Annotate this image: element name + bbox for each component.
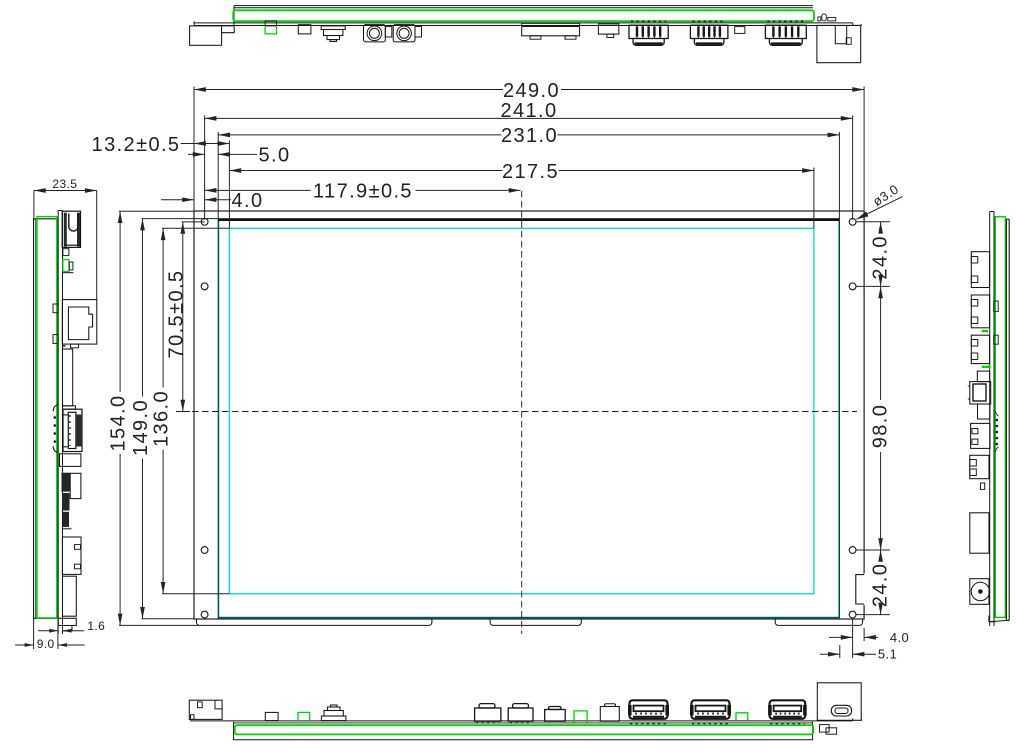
- svg-text:149.0: 149.0: [130, 399, 152, 456]
- svg-text:117.9±0.5: 117.9±0.5: [313, 181, 413, 203]
- svg-text:23.5: 23.5: [52, 177, 77, 191]
- svg-text:154.0: 154.0: [108, 394, 130, 451]
- svg-text:4.0: 4.0: [231, 190, 263, 212]
- svg-text:249.0: 249.0: [503, 80, 560, 102]
- svg-text:24.0: 24.0: [870, 235, 892, 280]
- svg-text:241.0: 241.0: [500, 100, 557, 122]
- svg-text:1.6: 1.6: [87, 619, 105, 633]
- svg-text:9.0: 9.0: [37, 637, 55, 651]
- svg-text:5.1: 5.1: [878, 647, 897, 662]
- svg-text:231.0: 231.0: [501, 125, 558, 147]
- svg-text:4.0: 4.0: [890, 630, 909, 645]
- svg-text:217.5: 217.5: [502, 161, 559, 183]
- svg-text:5.0: 5.0: [258, 145, 290, 167]
- svg-text:98.0: 98.0: [870, 404, 892, 449]
- svg-text:70.5±0.5: 70.5±0.5: [165, 270, 187, 359]
- svg-text:24.0: 24.0: [870, 563, 892, 608]
- svg-text:13.2±0.5: 13.2±0.5: [92, 134, 181, 156]
- svg-text:136.0: 136.0: [151, 390, 173, 447]
